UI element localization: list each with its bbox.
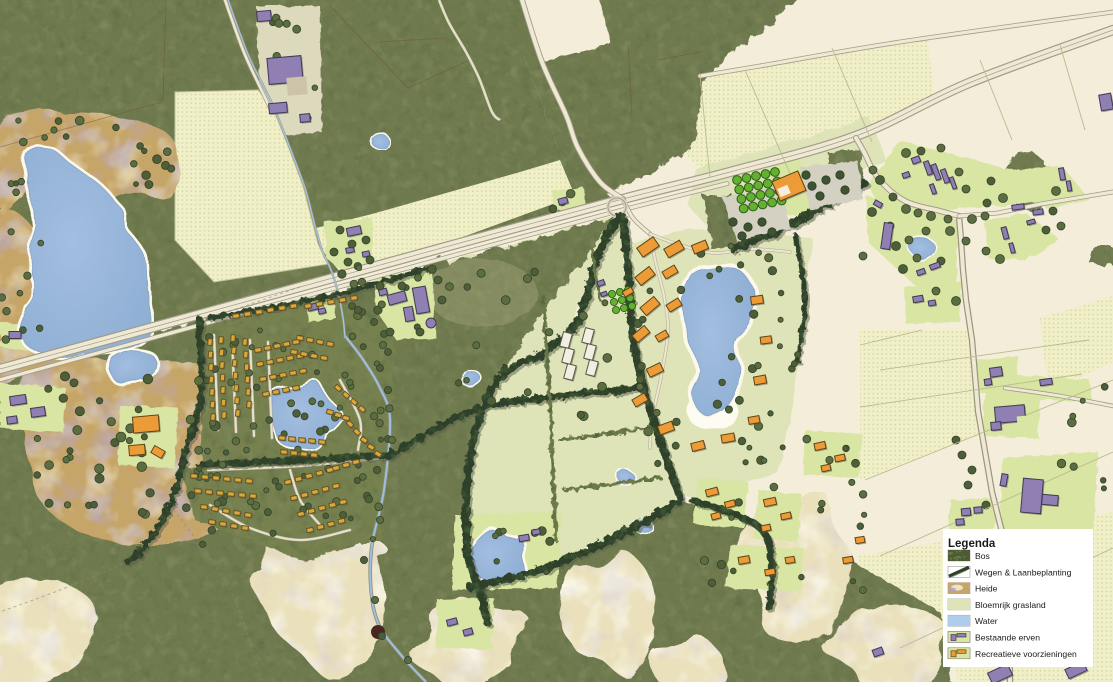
svg-text:Bos: Bos (975, 551, 990, 561)
svg-text:Water: Water (975, 616, 998, 626)
svg-text:Wegen & Laanbeplanting: Wegen & Laanbeplanting (975, 567, 1072, 577)
svg-text:Legenda: Legenda (948, 538, 996, 550)
svg-text:Bloemrijk grasland: Bloemrijk grasland (975, 600, 1046, 610)
svg-text:Heide: Heide (975, 584, 998, 594)
svg-text:Recreatieve voorzieningen: Recreatieve voorzieningen (975, 649, 1077, 659)
svg-text:Bestaande erven: Bestaande erven (975, 633, 1040, 643)
